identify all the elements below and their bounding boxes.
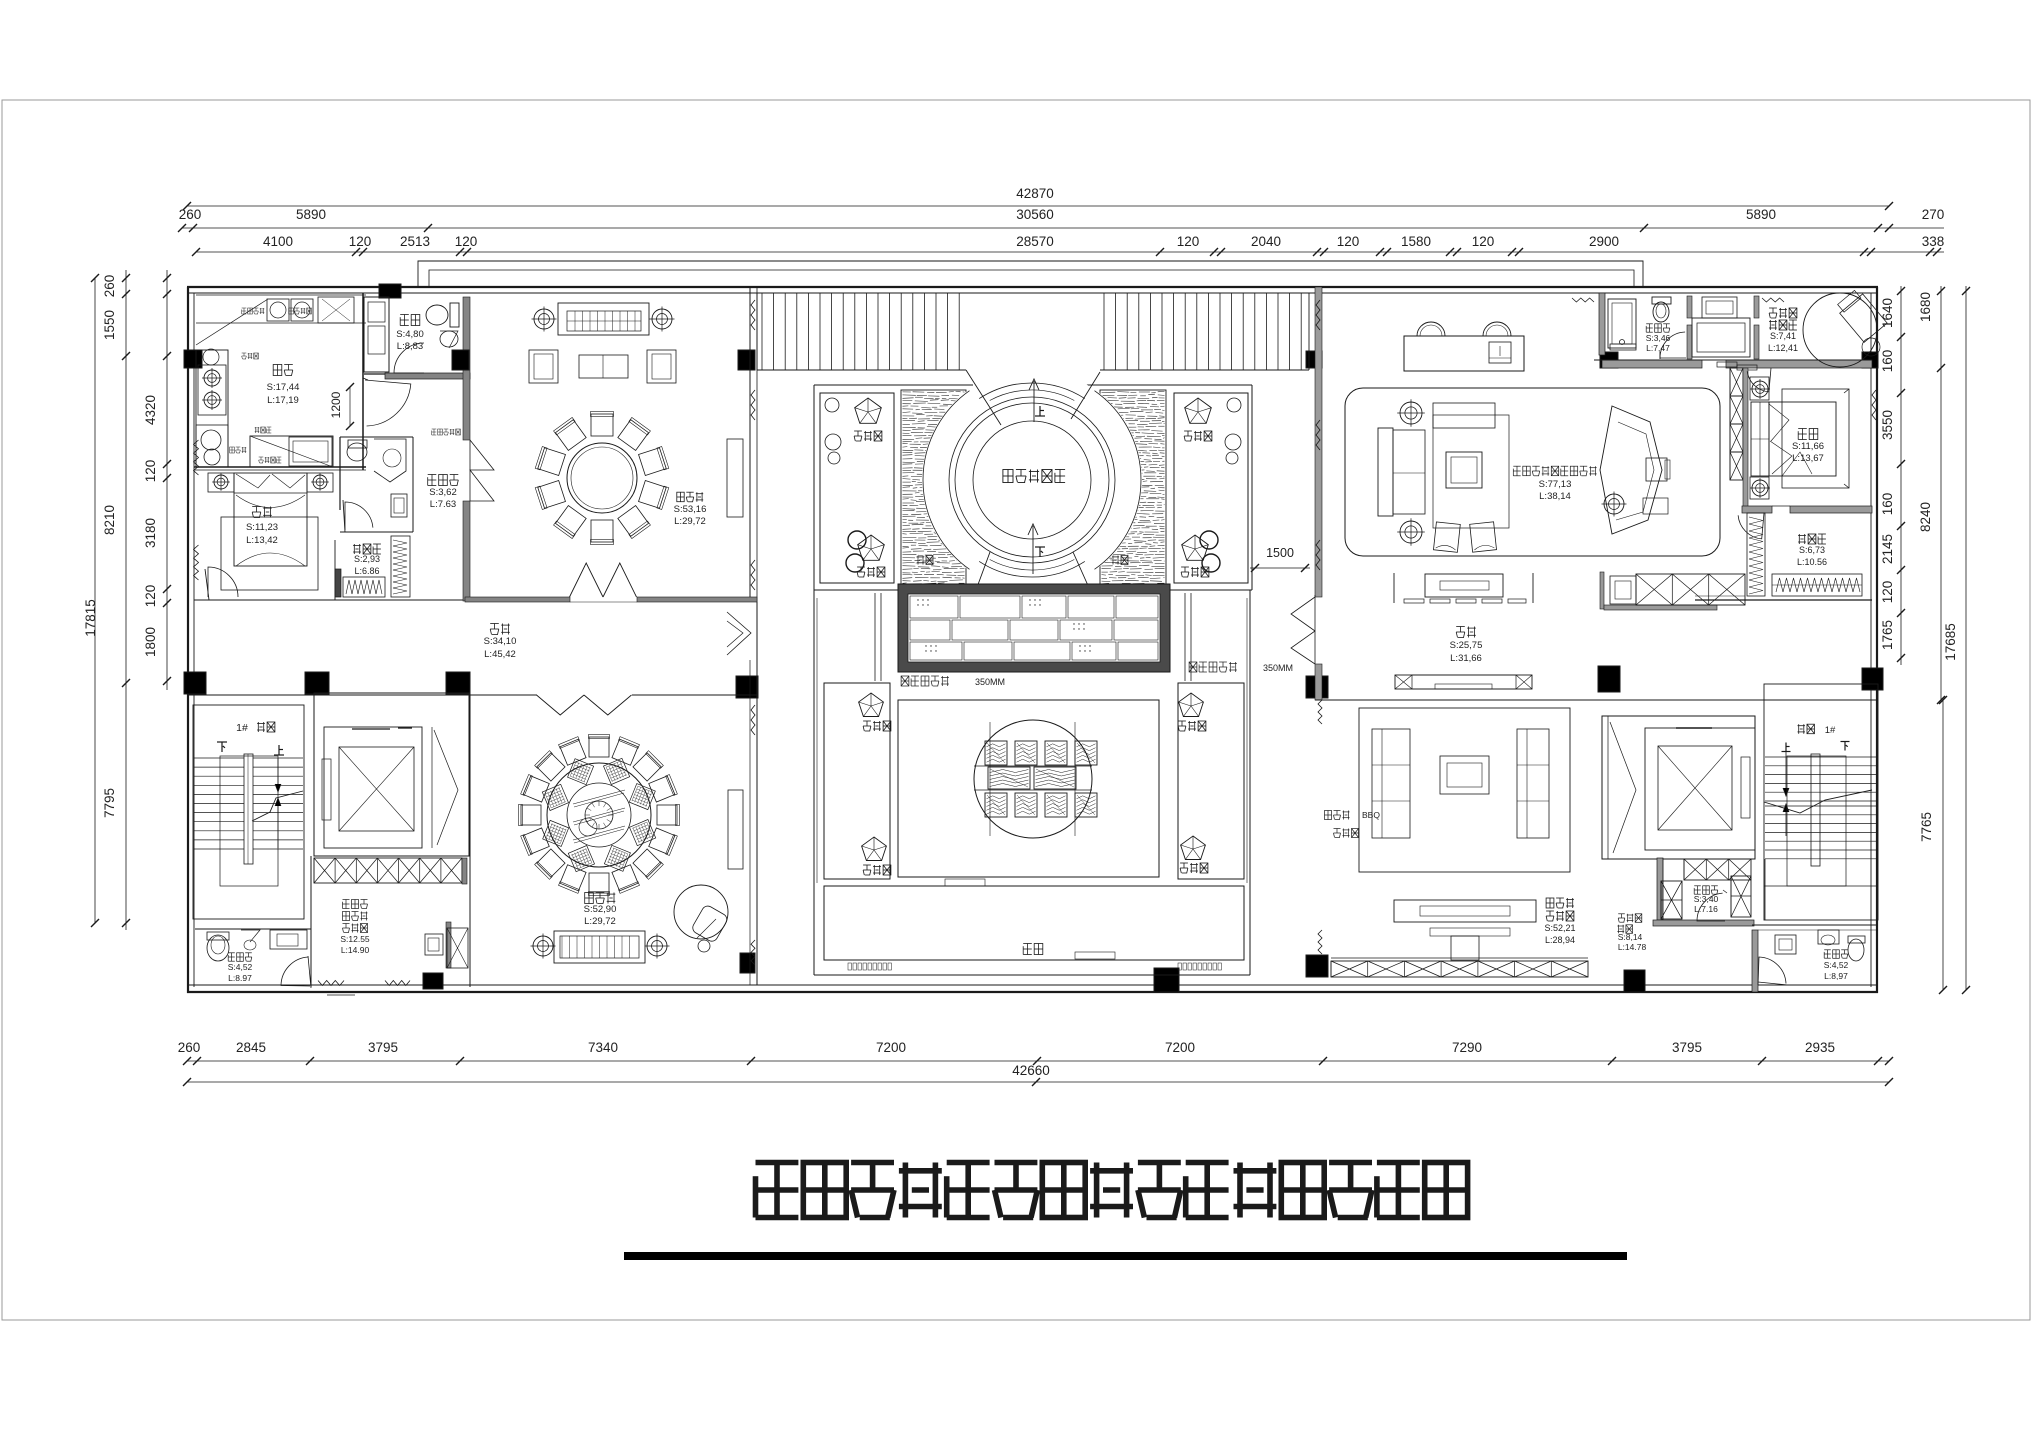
svg-text:S:4,52: S:4,52 [228, 962, 253, 972]
svg-text:3180: 3180 [143, 518, 158, 548]
svg-text:3795: 3795 [368, 1040, 398, 1055]
svg-text:S:3,46: S:3,46 [1646, 333, 1671, 343]
svg-text:1800: 1800 [143, 627, 158, 657]
svg-text:S:52,21: S:52,21 [1544, 923, 1575, 933]
svg-text:L:13,67: L:13,67 [1792, 453, 1824, 464]
svg-text:L:31,66: L:31,66 [1450, 653, 1482, 664]
svg-text:S:12.55: S:12.55 [340, 934, 370, 944]
svg-text:S:3,62: S:3,62 [429, 487, 456, 498]
svg-text:7795: 7795 [102, 788, 117, 818]
svg-text:270: 270 [1922, 207, 1945, 222]
svg-text:S:3,40: S:3,40 [1694, 894, 1719, 904]
svg-text:17815: 17815 [83, 599, 98, 637]
svg-text:3795: 3795 [1672, 1040, 1702, 1055]
svg-text:5890: 5890 [1746, 207, 1776, 222]
svg-text:S:34,10: S:34,10 [484, 636, 517, 647]
svg-text:1550: 1550 [102, 310, 117, 340]
svg-text:S:77,13: S:77,13 [1539, 479, 1572, 490]
svg-text:L:17,19: L:17,19 [267, 395, 299, 406]
svg-text:L:29,72: L:29,72 [674, 516, 706, 527]
svg-text:S:8,14: S:8,14 [1618, 932, 1643, 942]
svg-text:1765: 1765 [1880, 620, 1895, 650]
svg-text:260: 260 [102, 275, 117, 298]
svg-text:120: 120 [143, 585, 158, 608]
svg-text:2513: 2513 [400, 234, 430, 249]
svg-text:S:11,66: S:11,66 [1792, 441, 1824, 452]
svg-text:120: 120 [143, 460, 158, 483]
svg-text:120: 120 [1472, 234, 1495, 249]
svg-text:1680: 1680 [1918, 292, 1933, 322]
svg-text:2900: 2900 [1589, 234, 1619, 249]
svg-text:S:17,44: S:17,44 [267, 382, 300, 393]
svg-text:260: 260 [179, 207, 202, 222]
svg-text:260: 260 [178, 1040, 201, 1055]
svg-text:7290: 7290 [1452, 1040, 1482, 1055]
svg-text:7200: 7200 [876, 1040, 906, 1055]
svg-text:1640: 1640 [1880, 298, 1895, 328]
svg-text:42660: 42660 [1012, 1063, 1050, 1078]
svg-text:160: 160 [1880, 493, 1895, 516]
svg-text:30560: 30560 [1016, 207, 1054, 222]
svg-text:350MM: 350MM [1263, 663, 1293, 673]
svg-text:4100: 4100 [263, 234, 293, 249]
svg-text:S:25,75: S:25,75 [1450, 640, 1483, 651]
svg-text:S:4,52: S:4,52 [1824, 960, 1849, 970]
svg-text:8240: 8240 [1918, 502, 1933, 532]
svg-text:17685: 17685 [1943, 623, 1958, 661]
svg-text:S:53,16: S:53,16 [674, 504, 707, 515]
svg-text:120: 120 [1880, 581, 1895, 604]
svg-text:3550: 3550 [1880, 410, 1895, 440]
svg-text:8210: 8210 [102, 505, 117, 535]
svg-text:S:11,23: S:11,23 [246, 522, 278, 533]
svg-text:L:12,41: L:12,41 [1768, 343, 1798, 353]
svg-text:S:2,93: S:2,93 [354, 554, 380, 564]
svg-text:L:8,97: L:8,97 [1824, 971, 1848, 981]
svg-text:S:6,73: S:6,73 [1799, 545, 1825, 555]
svg-text:L:14.90: L:14.90 [341, 945, 370, 955]
svg-text:S:52,90: S:52,90 [584, 904, 617, 915]
svg-text:L:13,42: L:13,42 [246, 535, 278, 546]
svg-text:L:8.97: L:8.97 [228, 973, 252, 983]
svg-text:350MM: 350MM [975, 677, 1005, 687]
svg-text:4320: 4320 [143, 395, 158, 425]
svg-text:2935: 2935 [1805, 1040, 1835, 1055]
svg-text:L:29,72: L:29,72 [584, 916, 616, 927]
svg-text:L:6.86: L:6.86 [354, 566, 379, 576]
svg-text:2845: 2845 [236, 1040, 266, 1055]
svg-text:L:10.56: L:10.56 [1797, 557, 1827, 567]
svg-text:L:28,94: L:28,94 [1545, 935, 1575, 945]
svg-text:1#: 1# [1825, 725, 1836, 736]
svg-text:S:7,41: S:7,41 [1770, 331, 1796, 341]
svg-text:L:38,14: L:38,14 [1539, 491, 1571, 502]
svg-text:BBQ: BBQ [1362, 810, 1380, 820]
svg-text:120: 120 [455, 234, 478, 249]
svg-text:L:7.16: L:7.16 [1694, 904, 1718, 914]
svg-text:160: 160 [1880, 350, 1895, 373]
svg-text:7765: 7765 [1919, 812, 1934, 842]
svg-text:5890: 5890 [296, 207, 326, 222]
svg-text:120: 120 [1177, 234, 1200, 249]
svg-text:28570: 28570 [1016, 234, 1054, 249]
svg-text:L:7,47: L:7,47 [1646, 343, 1670, 353]
svg-text:2145: 2145 [1880, 534, 1895, 564]
svg-text:1580: 1580 [1401, 234, 1431, 249]
svg-text:1#: 1# [236, 722, 248, 734]
svg-text:42870: 42870 [1016, 186, 1054, 201]
svg-text:7340: 7340 [588, 1040, 618, 1055]
svg-text:1500: 1500 [1266, 546, 1294, 560]
svg-text:1200: 1200 [329, 391, 343, 418]
svg-text:338: 338 [1922, 234, 1945, 249]
svg-text:S:4,80: S:4,80 [396, 329, 423, 340]
svg-text:L:14.78: L:14.78 [1618, 942, 1647, 952]
svg-text:L:7.63: L:7.63 [430, 499, 456, 510]
svg-text:2040: 2040 [1251, 234, 1281, 249]
svg-text:120: 120 [1337, 234, 1360, 249]
svg-text:7200: 7200 [1165, 1040, 1195, 1055]
svg-text:L:45,42: L:45,42 [484, 649, 516, 660]
svg-text:120: 120 [349, 234, 372, 249]
